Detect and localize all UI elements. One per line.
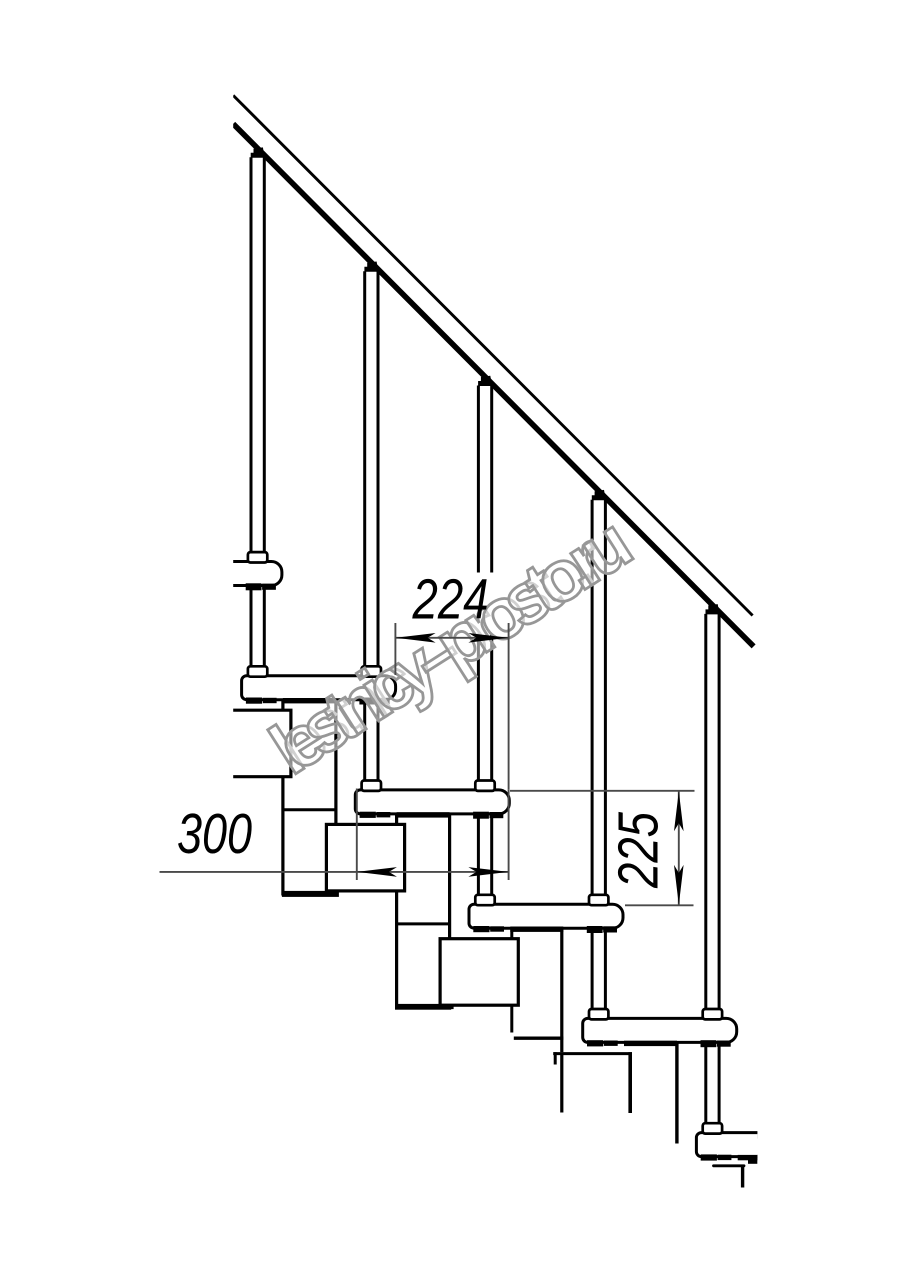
svg-text:300: 300 — [177, 802, 252, 866]
svg-text:224: 224 — [412, 568, 489, 632]
svg-text:225: 225 — [607, 812, 671, 889]
